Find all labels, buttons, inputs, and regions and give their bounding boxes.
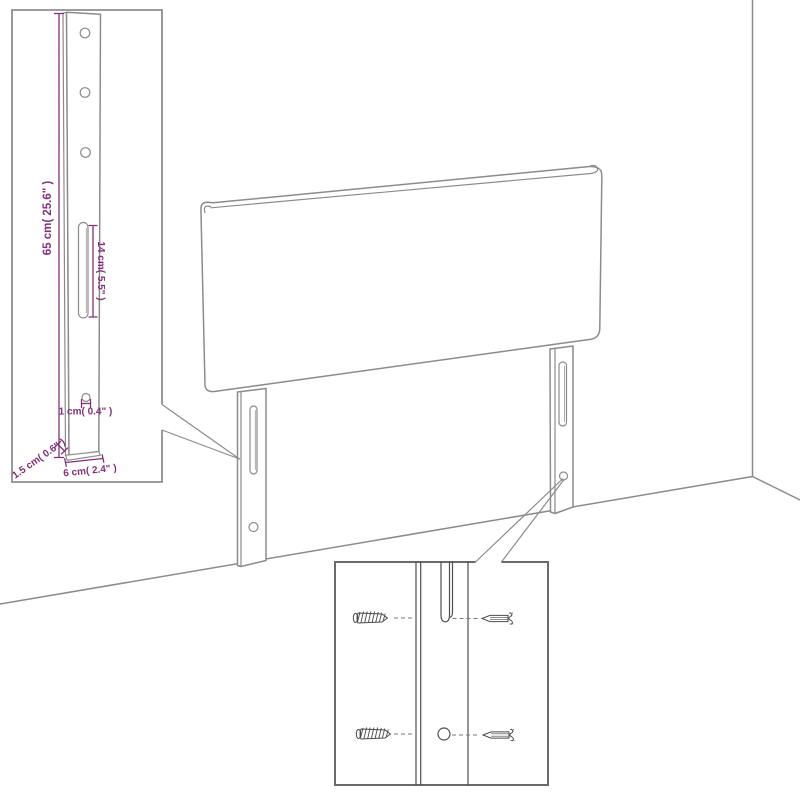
dim-height-label: 65 cm( 25.6" ) bbox=[42, 181, 54, 256]
headboard-panel bbox=[201, 166, 602, 392]
diagram-canvas: 65 cm( 25.6" ) 14 cm( 5.5" ) 1 cm( 0.4" … bbox=[0, 0, 800, 800]
leg-screw-hole bbox=[249, 523, 258, 532]
callout-line-right bbox=[502, 480, 565, 563]
leg-slot bbox=[250, 406, 257, 474]
leg-slot bbox=[559, 362, 567, 426]
leg-enlarged bbox=[63, 12, 101, 460]
panel-outline bbox=[201, 167, 602, 392]
headboard-dimension-diagram: 65 cm( 25.6" ) 14 cm( 5.5" ) 1 cm( 0.4" … bbox=[0, 0, 800, 800]
leg-inset-callout bbox=[162, 405, 240, 460]
dim-hole-label: 1 cm( 0.4" ) bbox=[59, 407, 113, 418]
callout-line-lower bbox=[162, 430, 240, 459]
dim-slot-label: 14 cm( 5.5" ) bbox=[95, 241, 106, 300]
screw-inset bbox=[335, 562, 548, 785]
leg-inset: 65 cm( 25.6" ) 14 cm( 5.5" ) 1 cm( 0.4" … bbox=[11, 10, 162, 482]
callout-line-upper bbox=[162, 405, 240, 460]
headboard-leg-left bbox=[238, 389, 267, 567]
floor-line-right bbox=[753, 477, 800, 501]
leg-screw-hole bbox=[560, 472, 568, 480]
